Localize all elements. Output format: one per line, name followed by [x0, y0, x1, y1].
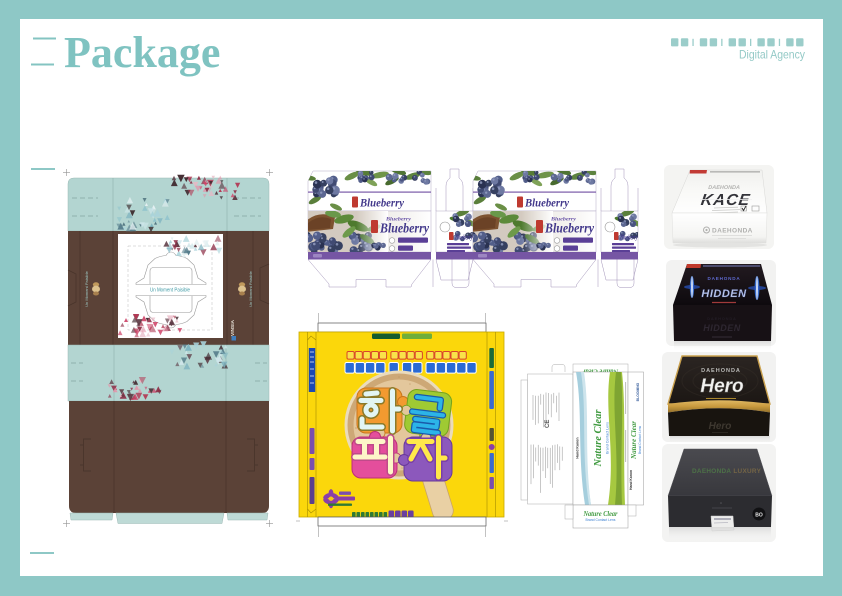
svg-text:Un Moment Paisible: Un Moment Paisible — [150, 288, 190, 294]
svg-text:BLOOMING: BLOOMING — [636, 382, 640, 401]
svg-text:Brand Contact Lens: Brand Contact Lens — [638, 426, 642, 455]
svg-text:Hero: Hero — [709, 421, 732, 432]
svg-text:Nature Clear: Nature Clear — [583, 509, 618, 518]
svg-text:DAEHONDA: DAEHONDA — [708, 276, 741, 281]
svg-text:BO: BO — [755, 513, 763, 519]
svg-text:Nature Clear: Nature Clear — [630, 421, 638, 460]
svg-text:Brand Contact Lens: Brand Contact Lens — [586, 518, 616, 522]
svg-text:Hand Kanon: Hand Kanon — [629, 470, 633, 490]
svg-text:Un Moment Paisible: Un Moment Paisible — [84, 270, 89, 307]
svg-text:Brand Contact Lens: Brand Contact Lens — [606, 422, 610, 454]
svg-text:HIDDEN: HIDDEN — [701, 288, 747, 300]
svg-text:Hand Kanon: Hand Kanon — [576, 437, 580, 458]
svg-text:Un Moment Paisible: Un Moment Paisible — [248, 270, 253, 307]
svg-text:DAEHONDALUXURY: DAEHONDALUXURY — [692, 468, 762, 475]
svg-text:Blueberry: Blueberry — [359, 198, 405, 210]
svg-text:Digital Agency: Digital Agency — [739, 48, 805, 62]
svg-text:DAEHONDA: DAEHONDA — [701, 368, 741, 374]
svg-text:Blueberry: Blueberry — [454, 234, 473, 242]
svg-text:HIDDEN: HIDDEN — [703, 323, 741, 333]
svg-text:Nature Clear: Nature Clear — [593, 409, 604, 468]
svg-text:VINSIA: VINSIA — [230, 319, 236, 336]
svg-text:DAEHONDA: DAEHONDA — [712, 228, 753, 235]
svg-text:Blueberry: Blueberry — [379, 222, 430, 237]
svg-text:DAEHONDA: DAEHONDA — [707, 316, 737, 321]
svg-text:Package: Package — [64, 28, 220, 77]
svg-text:Hero: Hero — [700, 376, 743, 397]
svg-text:CE: CE — [545, 420, 551, 428]
